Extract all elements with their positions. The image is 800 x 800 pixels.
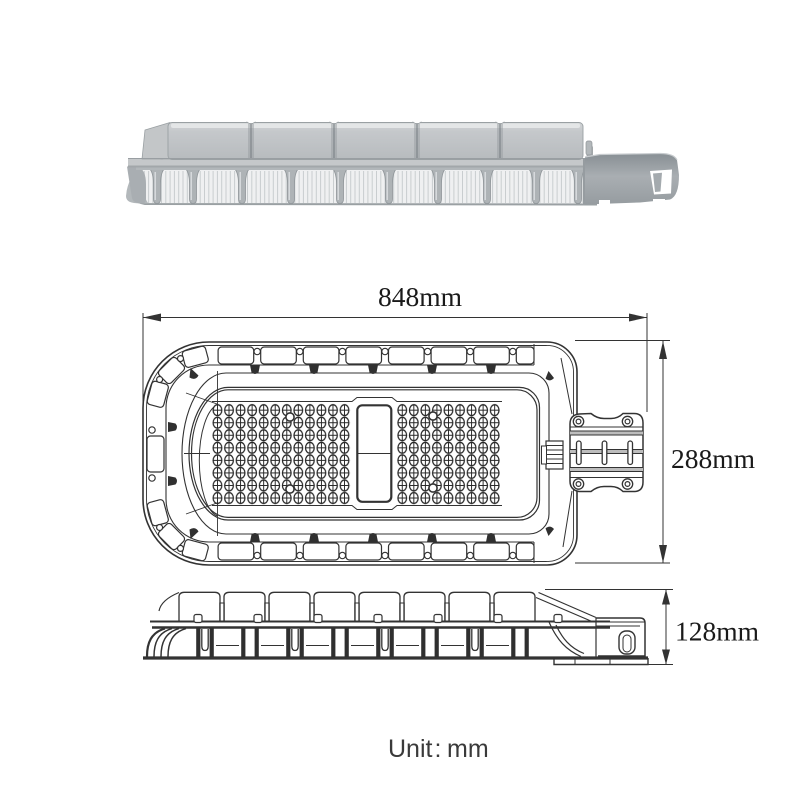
svg-text:Unit:mm: Unit:mm: [388, 735, 489, 763]
svg-text:288mm: 288mm: [671, 443, 755, 474]
svg-text:128mm: 128mm: [675, 616, 759, 647]
svg-text:848mm: 848mm: [378, 281, 462, 312]
